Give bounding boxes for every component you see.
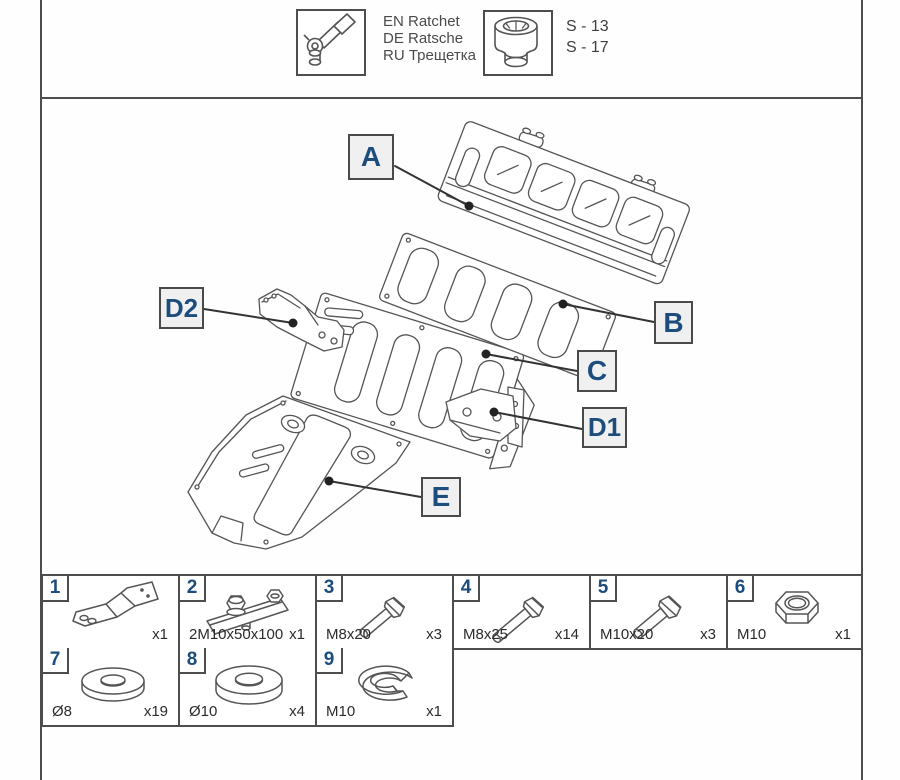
part-spec-label: M10x20: [600, 626, 653, 643]
callout-c: C: [577, 350, 617, 392]
part-number-badge: 4: [454, 576, 480, 602]
table-cell-5: 5 M10x20 x3: [591, 576, 728, 648]
callout-d1: D1: [582, 407, 627, 448]
table-cell-1: 1 x1: [43, 576, 180, 648]
table-cell-8: 8 Ø10 x4: [180, 648, 317, 725]
part-number-badge: 1: [43, 576, 69, 602]
part-quantity: x1: [289, 626, 305, 643]
table-cell-9: 9 M10 x1: [317, 648, 452, 725]
part-spec-label: M10: [326, 703, 355, 720]
part-number-badge: 7: [43, 648, 69, 674]
table-cell-7: 7 Ø8 x19: [43, 648, 180, 725]
part-spec-label: M10: [737, 626, 766, 643]
parts-table-row-1: 1 x1 2 2M10x50x100 x1 3: [41, 574, 863, 650]
callout-b: B: [654, 301, 693, 344]
part-number-badge: 9: [317, 648, 343, 674]
part-quantity: x3: [700, 626, 716, 643]
part-spec-label: M8x25: [463, 626, 508, 643]
callout-a: A: [348, 134, 394, 180]
part-spec-label: Ø8: [52, 703, 72, 720]
part-quantity: x3: [426, 626, 442, 643]
table-cell-2: 2 2M10x50x100 x1: [180, 576, 317, 648]
part-spec-label: 2M10x50x100: [189, 626, 283, 643]
part-number-badge: 6: [728, 576, 754, 602]
table-cell-3: 3 M8x20 x3: [317, 576, 454, 648]
part-number-badge: 2: [180, 576, 206, 602]
part-number-badge: 3: [317, 576, 343, 602]
parts-table-row-2: 7 Ø8 x19 8 Ø10 x4 9 M10 x1: [41, 648, 454, 727]
part-quantity: x4: [289, 703, 305, 720]
part-number-badge: 8: [180, 648, 206, 674]
part-spec-label: Ø10: [189, 703, 217, 720]
table-cell-6: 6 M10 x1: [728, 576, 861, 648]
callout-d2: D2: [159, 287, 204, 329]
table-cell-4: 4 M8x25 x14: [454, 576, 591, 648]
part-quantity: x1: [426, 703, 442, 720]
part-spec-label: M8x20: [326, 626, 371, 643]
part-quantity: x1: [152, 626, 168, 643]
part-number-badge: 5: [591, 576, 617, 602]
part-quantity: x1: [835, 626, 851, 643]
callout-e: E: [421, 477, 461, 517]
part-quantity: x14: [555, 626, 579, 643]
part-a-drawing: [437, 106, 697, 285]
part-quantity: x19: [144, 703, 168, 720]
